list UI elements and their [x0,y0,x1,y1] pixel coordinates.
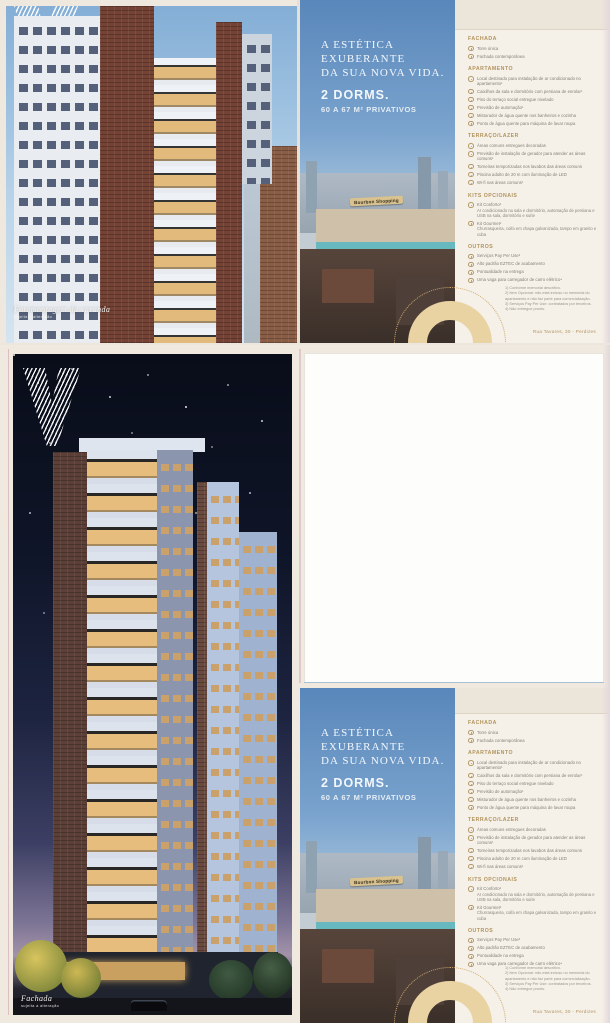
feature-item-body: Torre única [477,730,598,735]
feature-item-body: Previsão de instalação de gerador para a… [477,835,598,845]
feature-item: Kit Gourmet²Churrasqueira, coifa em chap… [468,903,598,921]
feature-item-body: Áreas comuns entregues decoradas [477,143,598,148]
feature-item-text: Wi-fi nas áreas comuns¹ [477,864,598,869]
feature-item-text: Previsão de automação¹ [477,105,598,110]
night-render-page: Fachada sujeita a alteração [0,345,295,1023]
feature-bullet-icon [468,738,474,744]
feature-item-text: Fachada contemporânea [477,738,598,743]
feature-item: Wi-fi nas áreas comuns¹ [468,179,598,187]
feature-item-text: Piso do terraço social entregue nivelado [477,781,598,786]
feature-bullet-icon [468,180,474,186]
feature-item: Alto padrão EZTEC de acabamento [468,944,598,952]
feature-bullet-icon [468,89,474,95]
feature-item-text: Fachada contemporânea [477,54,598,59]
feature-item: Torre única [468,729,598,737]
caption-title: Fachada [21,994,59,1003]
feature-item-subtext: Ar condicionado na sala e dormitório, au… [477,208,598,218]
feature-item: Piso do terraço social entregue nivelado [468,780,598,788]
feature-bullet-icon [468,797,474,803]
feature-item-subtext: Ar condicionado na sala e dormitório, au… [477,892,598,902]
feature-item-text: Uma vaga para carregador de carro elétri… [477,277,598,282]
feature-item-body: Pontualidade na entrega [477,269,598,274]
feature-bullet-icon [468,962,474,968]
features-panel: FACHADATorre únicaFachada contemporâneaA… [455,688,610,1023]
feature-item-body: Ponto de água quente para máquina de lav… [477,805,598,810]
feature-item: Serviços Pay Per Use³ [468,936,598,944]
page-edge-line [299,349,301,683]
feature-bullet-icon [468,105,474,111]
feature-item-body: Serviços Pay Per Use³ [477,937,598,942]
feature-section: APARTAMENTOLocal destinado para instalaç… [468,66,598,127]
feature-item: Torre única [468,45,598,53]
feature-item: Piscina adulto de 20 m com iluminação de… [468,171,598,179]
feature-item-text: Kit Gourmet² [477,905,598,910]
tower-brick-column [100,6,154,343]
feature-bullet-icon [468,781,474,787]
feature-item-text: Ponto de água quente para máquina de lav… [477,805,598,810]
skyline-tower [418,157,431,215]
stars [13,354,15,356]
right-page-2: A ESTÉTICA EXUBERANTE DA SUA NOVA VIDA. … [300,688,610,1023]
feature-bullet-icon [468,221,474,227]
feature-section: KITS OPCIONAISKit Conforto²Ar condiciona… [468,193,598,238]
feature-item-text: Kit Gourmet² [477,221,598,226]
feature-bullet-icon [468,886,474,892]
feature-item-text: Ponto de água quente para máquina de lav… [477,121,598,126]
headline-block: A ESTÉTICA EXUBERANTE DA SUA NOVA VIDA. … [321,38,444,114]
feature-item: Piso do terraço social entregue nivelado [468,96,598,104]
tower-step-wing [207,482,239,994]
feature-item-body: Previsão de instalação de gerador para a… [477,151,598,161]
feature-item: Kit Conforto²Ar condicionado na sala e d… [468,201,598,219]
feature-item: Previsão de instalação de gerador para a… [468,150,598,163]
feature-item-body: Ponto de água quente para máquina de lav… [477,121,598,126]
feature-item: Pontualidade na entrega [468,952,598,960]
feature-bullet-icon [468,848,474,854]
feature-item: Fachada contemporânea [468,736,598,744]
feature-bullet-icon [468,121,474,127]
tower-balconies [154,58,216,343]
feature-item-body: Misturador de água quente nos banheiros … [477,797,598,802]
feature-item-text: Piscina adulto de 20 m com iluminação de… [477,856,598,861]
feature-item-text: Torre única [477,46,598,51]
feature-bullet-icon [468,827,474,833]
feature-bullet-icon [468,864,474,870]
feature-item-body: Alto padrão EZTEC de acabamento [477,945,598,950]
feature-item: Local destinado para instalação de ar co… [468,75,598,88]
feature-section-title: FACHADA [468,720,598,726]
feature-item-text: Torre única [477,730,598,735]
headline-dorms: 2 DORMS. [321,776,444,790]
feature-item-body: Previsão de automação¹ [477,789,598,794]
headline-area: 60 A 67 M² PRIVATIVOS [321,793,444,802]
feature-bullet-icon [468,54,474,60]
feature-item: Caixilhos da sala e dormitório com persi… [468,772,598,780]
feature-bullet-icon [468,172,474,178]
feature-item-body: Serviços Pay Per Use³ [477,253,598,258]
feature-item: Wi-fi nas áreas comuns¹ [468,863,598,871]
feature-item: Previsão de instalação de gerador para a… [468,834,598,847]
feature-item-body: Wi-fi nas áreas comuns¹ [477,180,598,185]
feature-item-text: Previsão de automação¹ [477,789,598,794]
feature-bullet-icon [468,113,474,119]
footer-address: Rua Tavares, 30 - Perdizes [533,1009,596,1014]
headline-dorms: 2 DORMS. [321,88,444,102]
feature-bullet-icon [468,805,474,811]
feature-item-text: Alto padrão EZTEC de acabamento [477,261,598,266]
feature-item: Caixilhos da sala e dormitório com persi… [468,88,598,96]
feature-item-text: Local destinado para instalação de ar co… [477,76,598,86]
feature-bullet-icon [468,730,474,736]
feature-section-title: KITS OPCIONAIS [468,877,598,883]
feature-item: Alto padrão EZTEC de acabamento [468,260,598,268]
headline-area: 60 A 67 M² PRIVATIVOS [321,105,444,114]
feature-item: Fachada contemporânea [468,52,598,60]
tower-brick-column-2 [216,22,242,343]
feature-item-text: Caixilhos da sala e dormitório com persi… [477,773,598,778]
feature-bullet-icon [468,46,474,52]
feature-item-text: Alto padrão EZTEC de acabamento [477,945,598,950]
headline-line1: A ESTÉTICA [321,726,444,740]
feature-item-text: Torneiras temporizadas nos lavabos das á… [477,164,598,169]
feature-item-subtext: Churrasqueira, coifa em chapa galvanizad… [477,226,598,236]
page-edge-shadow [602,0,610,343]
feature-bullet-icon [468,254,474,260]
feature-item-body: Torneiras temporizadas nos lavabos das á… [477,848,598,853]
feature-item-body: Kit Gourmet²Churrasqueira, coifa em chap… [477,221,598,237]
feature-section-title: TERRAÇO/LAZER [468,133,598,139]
feature-item-body: Piscina adulto de 20 m com iluminação de… [477,856,598,861]
headline-line3: DA SUA NOVA VIDA. [321,754,444,768]
feature-item: Serviços Pay Per Use³ [468,252,598,260]
feature-section-title: FACHADA [468,36,598,42]
brochure-scan: Fotomontagem da varanda sujeita a altera… [0,0,610,1023]
feature-bullet-icon [468,835,474,841]
feature-item-body: Torneiras temporizadas nos lavabos das á… [477,164,598,169]
footnote-line: 2) Item Opcional: não está incluso no me… [505,971,605,982]
tree [15,940,67,992]
feature-item-text: Áreas comuns entregues decoradas [477,143,598,148]
footer-address: Rua Tavares, 30 - Perdizes [533,329,596,334]
feature-bullet-icon [468,954,474,960]
feature-item-text: Piscina adulto de 20 m com iluminação de… [477,172,598,177]
feature-item: Kit Conforto²Ar condicionado na sala e d… [468,885,598,903]
tower-balconies [87,450,157,994]
feature-item: Uma vaga para carregador de carro elétri… [468,276,598,284]
tower-brick-stripe [197,482,207,994]
feature-item-text: Serviços Pay Per Use³ [477,937,598,942]
feature-item-body: Previsão de automação¹ [477,105,598,110]
feature-section-title: KITS OPCIONAIS [468,193,598,199]
feature-item-text: Local destinado para instalação de ar co… [477,760,598,770]
feature-item-text: Áreas comuns entregues decoradas [477,827,598,832]
feature-bullet-icon [468,97,474,103]
feature-item-text: Torneiras temporizadas nos lavabos das á… [477,848,598,853]
feature-item-body: Piscina adulto de 20 m com iluminação de… [477,172,598,177]
tree [61,958,101,998]
feature-item: Kit Gourmet²Churrasqueira, coifa em chap… [468,219,598,237]
feature-bullet-icon [468,856,474,862]
caption-subtitle: sujeita a alteração [21,1003,59,1008]
feature-bullet-icon [468,270,474,276]
footnotes: 1) Conforme memorial descritivo.2) Item … [505,966,605,992]
page-edge-line [8,349,9,1015]
feature-item: Previsão de automação¹ [468,788,598,796]
feature-item-body: Wi-fi nas áreas comuns¹ [477,864,598,869]
feature-item-text: Caixilhos da sala e dormitório com persi… [477,89,598,94]
feature-bullet-icon [468,938,474,944]
tower-white-wing [14,16,100,343]
feature-item-body: Piso do terraço social entregue nivelado [477,97,598,102]
feature-item: Ponto de água quente para máquina de lav… [468,120,598,128]
page-edge-shadow [603,345,610,688]
feature-section-title: OUTROS [468,928,598,934]
feature-item-body: Local destinado para instalação de ar co… [477,76,598,86]
footnote-line: 4) Não entregue pronto. [505,987,605,992]
building-render-night: Fachada sujeita a alteração [13,354,292,1015]
feature-item: Local destinado para instalação de ar co… [468,759,598,772]
render-caption: Fotomontagem da varanda sujeita a altera… [14,305,110,319]
blank-page [304,353,604,683]
feature-item-body: Local destinado para instalação de ar co… [477,760,598,770]
feature-item-body: Kit Gourmet²Churrasqueira, coifa em chap… [477,905,598,921]
skyline-tower [306,841,317,893]
car [131,1000,167,1011]
feature-item-body: Fachada contemporânea [477,54,598,59]
right-page-1: A ESTÉTICA EXUBERANTE DA SUA NOVA VIDA. … [300,0,610,343]
feature-item-text: Kit Conforto² [477,202,598,207]
feature-item: Pontualidade na entrega [468,268,598,276]
tower-far-wing [239,532,277,994]
feature-item-text: Misturador de água quente nos banheiros … [477,797,598,802]
feature-item-body: Caixilhos da sala e dormitório com persi… [477,89,598,94]
headline-block: A ESTÉTICA EXUBERANTE DA SUA NOVA VIDA. … [321,726,444,802]
footnote-line: 4) Não entregue pronto. [505,307,605,312]
feature-bullet-icon [468,946,474,952]
feature-bullet-icon [468,164,474,170]
panel-top-band [455,688,610,714]
feature-item: Ponto de água quente para máquina de lav… [468,804,598,812]
feature-item-text: Pontualidade na entrega [477,269,598,274]
feature-item-body: Caixilhos da sala e dormitório com persi… [477,773,598,778]
caption-title: Fotomontagem da varanda [14,305,110,314]
feature-section-title: APARTAMENTO [468,66,598,72]
feature-item-body: Piso do terraço social entregue nivelado [477,781,598,786]
feature-section: TERRAÇO/LAZERÁreas comuns entregues deco… [468,133,598,186]
feature-item-text: Serviços Pay Per Use³ [477,253,598,258]
feature-bullet-icon [468,143,474,149]
feature-item-text: Kit Conforto² [477,886,598,891]
feature-item-body: Alto padrão EZTEC de acabamento [477,261,598,266]
feature-bullet-icon [468,905,474,911]
feature-section: TERRAÇO/LAZERÁreas comuns entregues deco… [468,817,598,870]
footnote-line: 2) Item Opcional: não está incluso no me… [505,291,605,302]
feature-section: OUTROSServiços Pay Per Use³Alto padrão E… [468,244,598,284]
feature-item: Áreas comuns entregues decoradas [468,826,598,834]
feature-item-body: Torre única [477,46,598,51]
tower-brick-column [53,452,87,992]
feature-bullet-icon [468,773,474,779]
feature-section: FACHADATorre únicaFachada contemporânea [468,720,598,744]
feature-list: FACHADATorre únicaFachada contemporâneaA… [468,720,598,968]
feature-bullet-icon [468,151,474,157]
feature-item-body: Kit Conforto²Ar condicionado na sala e d… [477,886,598,902]
feature-item-text: Previsão de instalação de gerador para a… [477,835,598,845]
feature-bullet-icon [468,789,474,795]
feature-item-body: Kit Conforto²Ar condicionado na sala e d… [477,202,598,218]
render-caption: Fachada sujeita a alteração [21,994,59,1008]
headline-line3: DA SUA NOVA VIDA. [321,66,444,80]
feature-section: KITS OPCIONAISKit Conforto²Ar condiciona… [468,877,598,922]
footnotes: 1) Conforme memorial descritivo.2) Item … [505,286,605,312]
feature-item: Misturador de água quente nos banheiros … [468,112,598,120]
feature-list: FACHADATorre únicaFachada contemporâneaA… [468,36,598,284]
tree [253,952,292,998]
feature-item-text: Piso do terraço social entregue nivelado [477,97,598,102]
spread-2: Fachada sujeita a alteração A ESTÉTICA E… [0,345,610,1023]
feature-item: Previsão de automação¹ [468,104,598,112]
features-panel: FACHADATorre únicaFachada contemporâneaA… [455,0,610,343]
v-brand-logo-icon [23,368,81,446]
building-render-day: Fotomontagem da varanda sujeita a altera… [6,6,298,343]
feature-item-text: Misturador de água quente nos banheiros … [477,113,598,118]
feature-item: Misturador de água quente nos banheiros … [468,796,598,804]
feature-section: APARTAMENTOLocal destinado para instalaç… [468,750,598,811]
headline-line1: A ESTÉTICA [321,38,444,52]
day-render-page: Fotomontagem da varanda sujeita a altera… [0,0,300,343]
feature-item: Torneiras temporizadas nos lavabos das á… [468,163,598,171]
feature-bullet-icon [468,76,474,82]
foreground-building [322,269,374,303]
tower-rear-wing [242,34,272,184]
feature-item: Torneiras temporizadas nos lavabos das á… [468,847,598,855]
feature-item-subtext: Churrasqueira, coifa em chapa galvanizad… [477,910,598,920]
feature-section-title: TERRAÇO/LAZER [468,817,598,823]
feature-bullet-icon [468,760,474,766]
feature-item-body: Uma vaga para carregador de carro elétri… [477,277,598,282]
feature-item-text: Wi-fi nas áreas comuns¹ [477,180,598,185]
feature-item: Piscina adulto de 20 m com iluminação de… [468,855,598,863]
feature-item-body: Misturador de água quente nos banheiros … [477,113,598,118]
feature-item-body: Áreas comuns entregues decoradas [477,827,598,832]
page-edge-line [304,682,604,683]
page-edge-shadow [602,688,610,1023]
headline-line2: EXUBERANTE [321,740,444,754]
feature-section-title: APARTAMENTO [468,750,598,756]
feature-section-title: OUTROS [468,244,598,250]
feature-item-body: Fachada contemporânea [477,738,598,743]
feature-item-text: Pontualidade na entrega [477,953,598,958]
skyline-tower [418,837,431,895]
headline-line2: EXUBERANTE [321,52,444,66]
feature-item-body: Pontualidade na entrega [477,953,598,958]
feature-bullet-icon [468,262,474,268]
feature-section: FACHADATorre únicaFachada contemporânea [468,36,598,60]
feature-bullet-icon [468,278,474,284]
tower-mid-column [157,450,193,994]
feature-section: OUTROSServiços Pay Per Use³Alto padrão E… [468,928,598,968]
caption-subtitle: sujeita a alteração [14,314,110,319]
spread-1: Fotomontagem da varanda sujeita a altera… [0,0,610,343]
skyline-tower [306,161,317,213]
feature-bullet-icon [468,202,474,208]
feature-item: Áreas comuns entregues decoradas [468,142,598,150]
foreground-building [322,949,374,983]
feature-item-text: Previsão de instalação de gerador para a… [477,151,598,161]
tree [209,960,253,1000]
panel-top-band [455,0,610,30]
